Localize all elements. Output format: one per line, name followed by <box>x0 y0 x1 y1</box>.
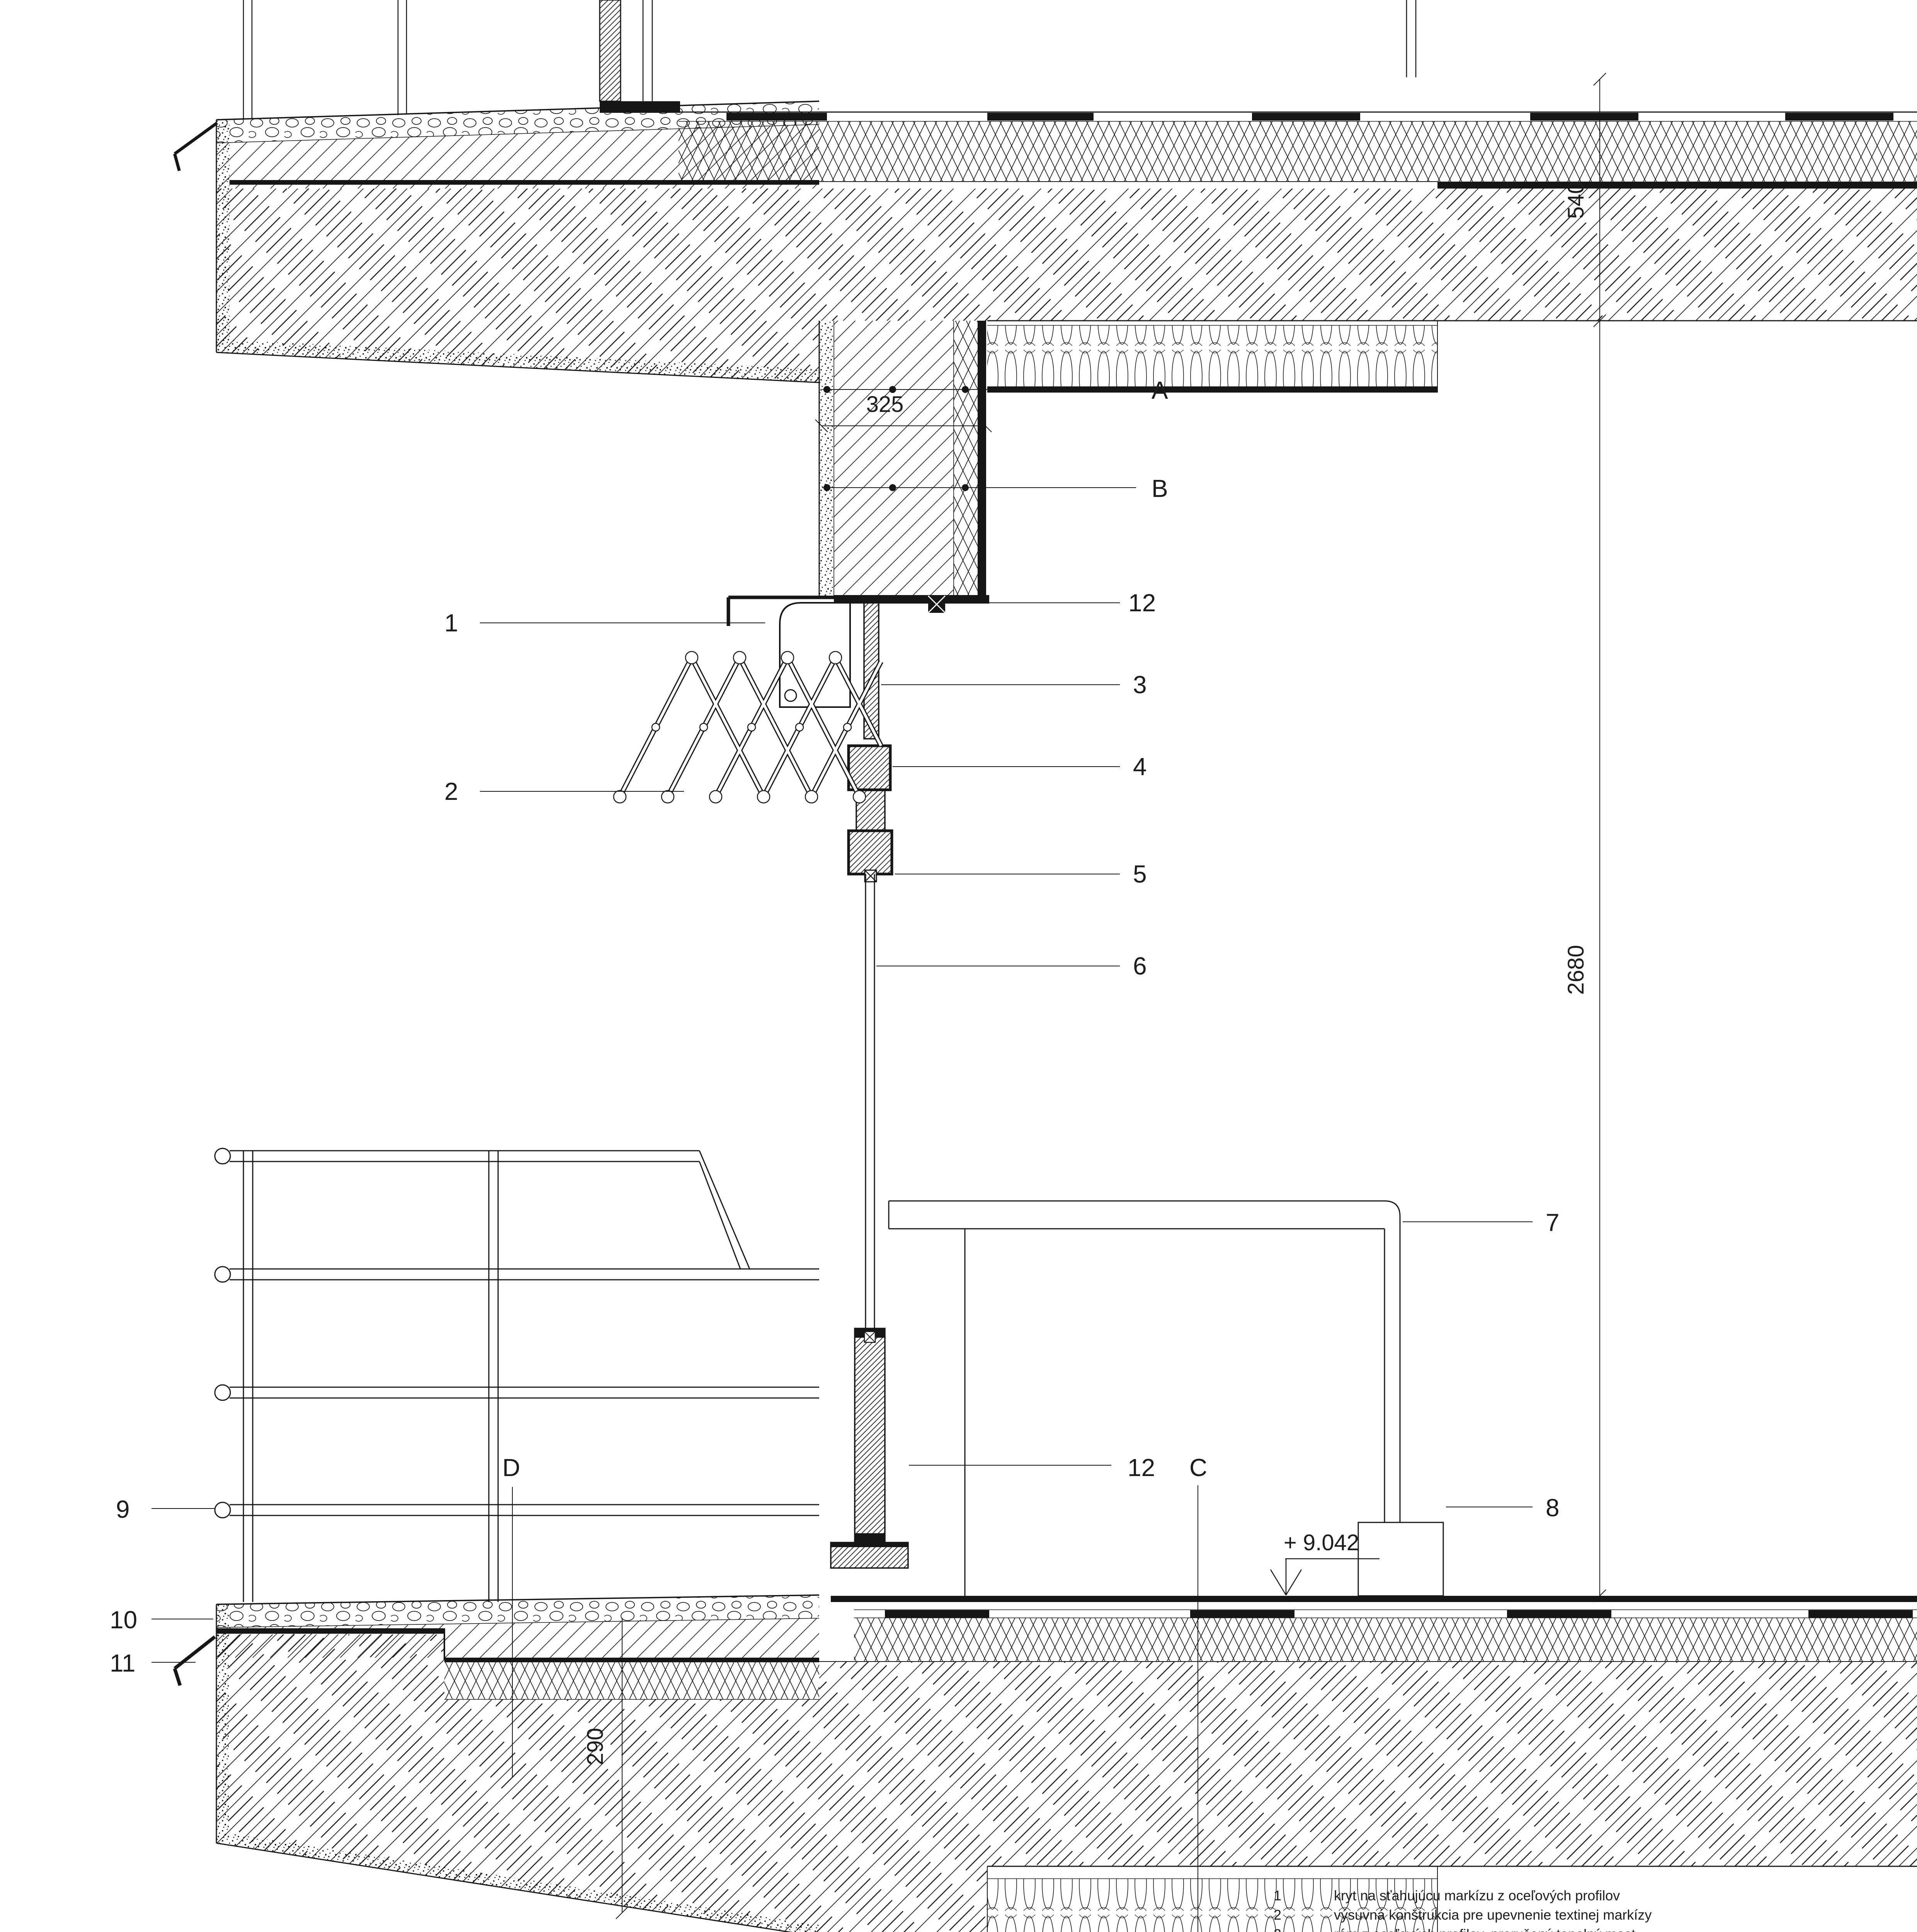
legend-item-num: 3 <box>1274 1926 1281 1932</box>
balcony-railing <box>215 1148 819 1602</box>
callout-2: 2 <box>444 777 458 805</box>
callout-1: 1 <box>444 609 458 637</box>
callout-6: 6 <box>1133 952 1147 980</box>
callout-A: A <box>1152 376 1168 404</box>
door-glazing <box>866 874 874 1328</box>
callout-8: 8 <box>1546 1494 1560 1522</box>
upper-interior-floor-buildup <box>679 112 1917 189</box>
concrete-table <box>889 1201 1443 1596</box>
callout-10: 10 <box>110 1606 137 1634</box>
detail-drawing-canvas: 325 540 2680 290 + 9.042 1 2 12 3 4 5 6 … <box>0 0 1917 1932</box>
callout-5: 5 <box>1133 860 1147 888</box>
callout-11: 11 <box>110 1649 135 1677</box>
lower-slab-assembly <box>175 1595 1917 1932</box>
upper-ceiling-mineral-wool <box>987 321 1437 393</box>
lower-balcony <box>175 1595 819 1932</box>
callout-7: 7 <box>1546 1209 1560 1236</box>
callout-12-top: 12 <box>1128 589 1156 617</box>
callout-C: C <box>1189 1454 1207 1481</box>
upper-slab-assembly <box>175 0 1917 393</box>
upper-storey-railing-posts <box>243 0 407 119</box>
callout-9: 9 <box>116 1495 130 1523</box>
dim-540: 540 <box>1563 182 1589 219</box>
door-head-upper <box>728 596 945 882</box>
legend-item-num: 1 <box>1274 1888 1281 1903</box>
legend-item-text: výsuvná konštrukcia pre upevnenie textin… <box>1334 1907 1652 1923</box>
legend-item-text: kryt na sťahujúcu markízu z oceľových pr… <box>1334 1888 1620 1903</box>
upper-drip-edge <box>175 123 217 171</box>
dim-325: 325 <box>866 392 904 417</box>
heating-cable-box-upper <box>928 596 945 613</box>
door-sash-profile <box>849 831 892 874</box>
dim-2680: 2680 <box>1563 945 1589 995</box>
callout-4: 4 <box>1133 753 1147 781</box>
legend-item-text: rám z oceľových profilov, prerušený tepe… <box>1334 1926 1635 1932</box>
upper-wall <box>819 321 989 604</box>
callout-B: B <box>1152 474 1168 502</box>
level-mark: + 9.042 <box>1284 1530 1359 1555</box>
drip-edge-flashing <box>175 1637 215 1685</box>
legend-item-num: 2 <box>1274 1907 1281 1923</box>
callout-D: D <box>502 1454 520 1481</box>
callout-12-bottom: 12 <box>1128 1454 1155 1481</box>
upper-storey-door <box>600 0 1416 113</box>
door-bottom <box>831 1328 908 1568</box>
dim-290: 290 <box>583 1728 608 1765</box>
callout-3: 3 <box>1133 671 1147 699</box>
